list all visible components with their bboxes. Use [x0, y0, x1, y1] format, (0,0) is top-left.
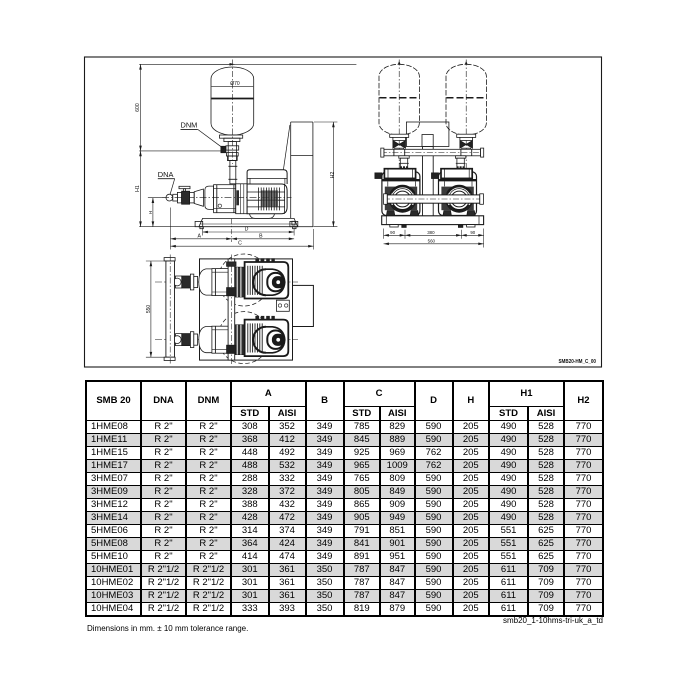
svg-text:Ø70: Ø70 [230, 81, 240, 87]
svg-text:C: C [238, 241, 242, 247]
svg-text:H2: H2 [330, 172, 336, 179]
svg-text:550: 550 [146, 305, 152, 314]
svg-text:B: B [259, 233, 263, 239]
svg-text:H: H [148, 211, 153, 214]
svg-text:DNA: DNA [158, 170, 174, 179]
svg-text:600: 600 [135, 103, 141, 112]
svg-text:H1: H1 [135, 185, 141, 192]
svg-text:90: 90 [470, 230, 475, 235]
svg-text:380: 380 [427, 230, 435, 235]
svg-text:90: 90 [390, 230, 395, 235]
svg-text:DNM: DNM [181, 121, 198, 130]
svg-text:560: 560 [428, 238, 436, 243]
svg-text:SMB20-HM_C_00: SMB20-HM_C_00 [559, 359, 597, 365]
svg-text:D: D [245, 227, 249, 233]
svg-text:A: A [197, 233, 201, 239]
